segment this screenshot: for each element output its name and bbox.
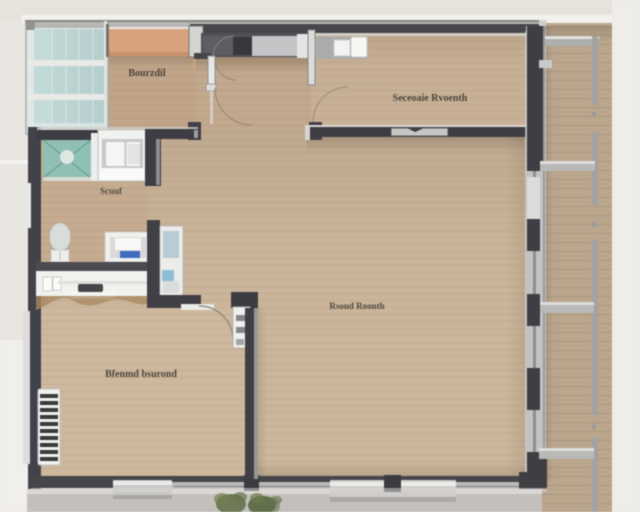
svg-text:Bourzdil: Bourzdil bbox=[128, 68, 165, 79]
svg-text:Bfenmd bsurond: Bfenmd bsurond bbox=[105, 369, 177, 380]
svg-text:Rsoud Roonth: Rsoud Roonth bbox=[329, 301, 384, 311]
svg-text:Scuuf: Scuuf bbox=[100, 186, 123, 196]
svg-text:Seceoaie Rvoenth: Seceoaie Rvoenth bbox=[393, 93, 468, 104]
